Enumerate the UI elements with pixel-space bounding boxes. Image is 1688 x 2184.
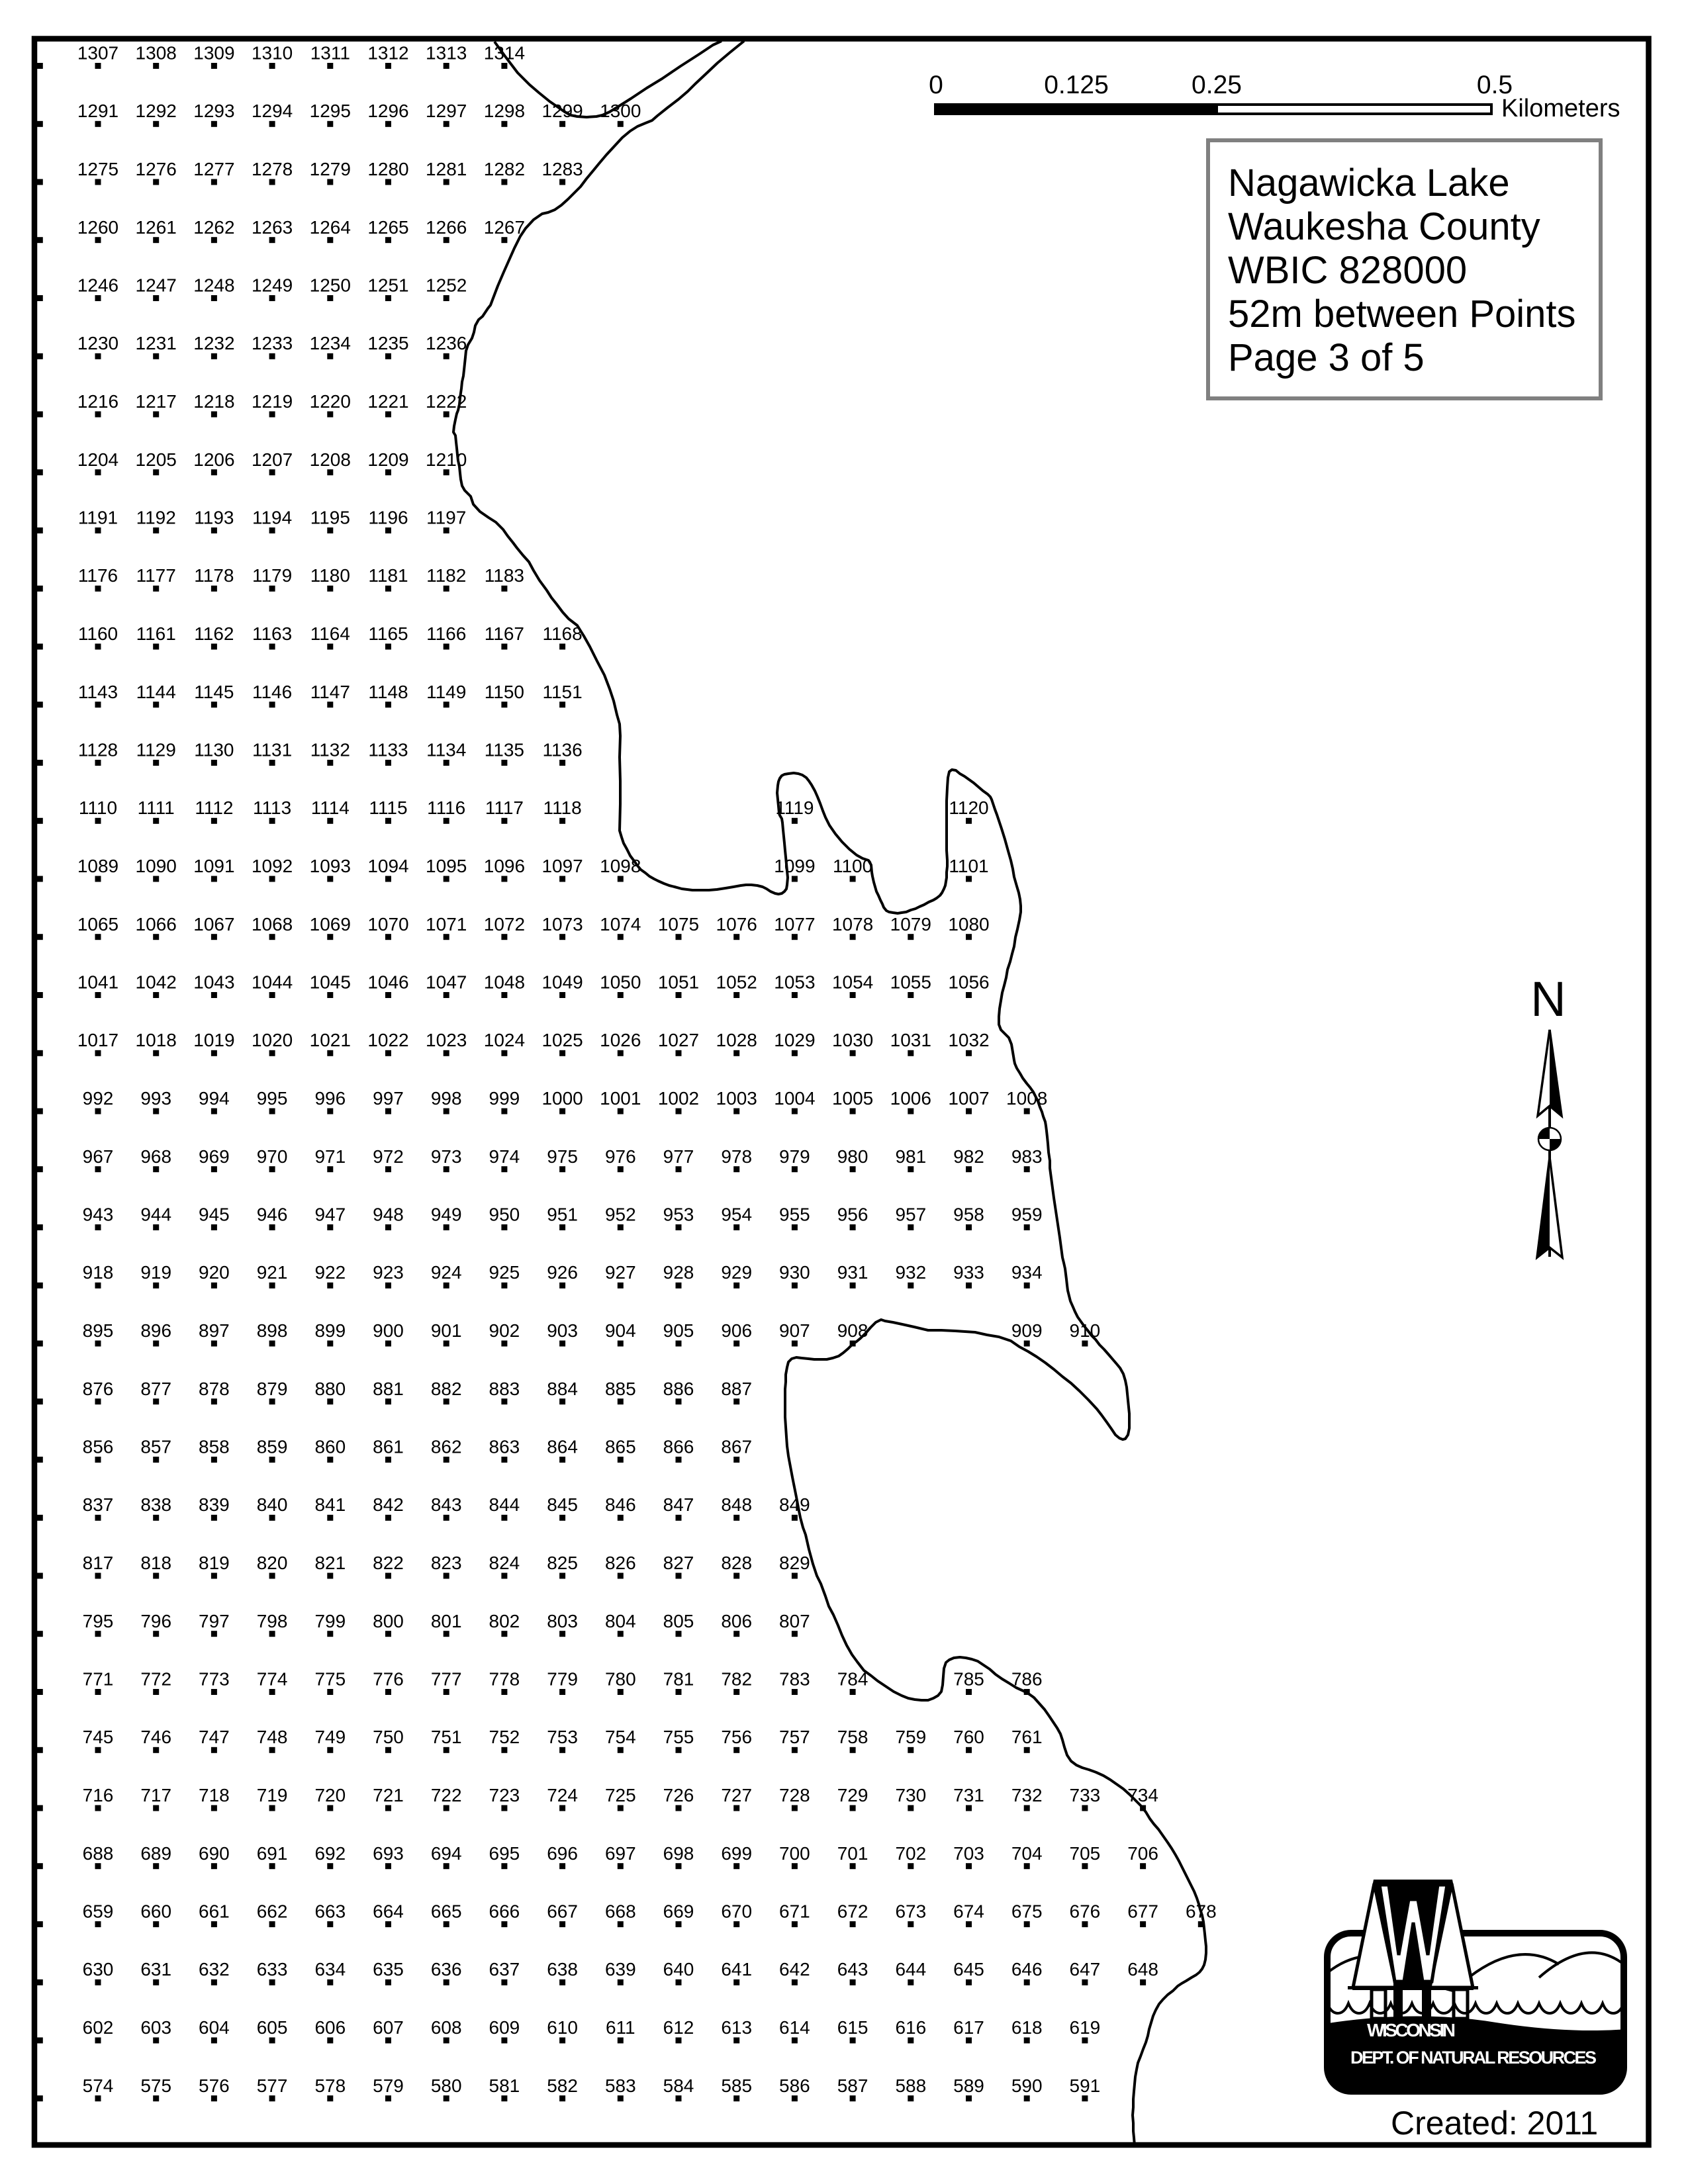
svg-text:1260: 1260 bbox=[77, 217, 118, 238]
svg-text:610: 610 bbox=[547, 2017, 578, 2038]
svg-text:606: 606 bbox=[314, 2017, 346, 2038]
svg-text:729: 729 bbox=[837, 1785, 868, 1805]
svg-text:676: 676 bbox=[1070, 1901, 1101, 1922]
svg-text:821: 821 bbox=[314, 1553, 346, 1573]
svg-text:1032: 1032 bbox=[948, 1030, 989, 1050]
svg-text:840: 840 bbox=[257, 1494, 288, 1515]
svg-text:898: 898 bbox=[257, 1320, 288, 1341]
svg-text:807: 807 bbox=[779, 1611, 810, 1631]
svg-text:973: 973 bbox=[431, 1146, 462, 1167]
svg-text:1193: 1193 bbox=[194, 508, 234, 528]
svg-text:862: 862 bbox=[431, 1437, 462, 1457]
svg-text:578: 578 bbox=[314, 2075, 346, 2096]
svg-text:605: 605 bbox=[257, 2017, 288, 2038]
svg-text:1133: 1133 bbox=[368, 740, 408, 760]
svg-text:1277: 1277 bbox=[193, 159, 234, 179]
svg-text:1007: 1007 bbox=[948, 1088, 989, 1109]
svg-text:663: 663 bbox=[314, 1901, 346, 1922]
svg-text:1134: 1134 bbox=[426, 740, 466, 760]
svg-text:721: 721 bbox=[373, 1785, 404, 1805]
svg-text:773: 773 bbox=[199, 1669, 230, 1690]
svg-text:877: 877 bbox=[140, 1379, 171, 1399]
svg-text:583: 583 bbox=[605, 2075, 636, 2096]
svg-text:Kilometers: Kilometers bbox=[1501, 95, 1620, 122]
svg-text:846: 846 bbox=[605, 1494, 636, 1515]
svg-text:751: 751 bbox=[431, 1727, 462, 1747]
svg-text:1020: 1020 bbox=[252, 1030, 293, 1050]
svg-text:1114: 1114 bbox=[311, 797, 350, 818]
svg-text:576: 576 bbox=[199, 2075, 230, 2096]
svg-text:672: 672 bbox=[837, 1901, 868, 1922]
svg-text:1296: 1296 bbox=[367, 101, 408, 121]
svg-text:1001: 1001 bbox=[600, 1088, 641, 1109]
svg-text:644: 644 bbox=[895, 1959, 926, 1979]
svg-text:671: 671 bbox=[779, 1901, 810, 1922]
svg-text:926: 926 bbox=[547, 1262, 578, 1283]
svg-text:640: 640 bbox=[663, 1959, 694, 1979]
svg-text:1298: 1298 bbox=[484, 101, 525, 121]
svg-text:1209: 1209 bbox=[367, 449, 408, 470]
svg-text:617: 617 bbox=[953, 2017, 984, 2038]
svg-text:635: 635 bbox=[373, 1959, 404, 1979]
svg-text:1144: 1144 bbox=[136, 682, 176, 702]
svg-text:1183: 1183 bbox=[485, 565, 524, 586]
svg-text:591: 591 bbox=[1070, 2075, 1101, 2096]
svg-text:1129: 1129 bbox=[136, 740, 176, 760]
svg-text:1307: 1307 bbox=[77, 43, 118, 64]
svg-text:864: 864 bbox=[547, 1437, 578, 1457]
svg-text:732: 732 bbox=[1011, 1785, 1043, 1805]
svg-text:946: 946 bbox=[257, 1205, 288, 1225]
svg-text:865: 865 bbox=[605, 1437, 636, 1457]
svg-text:1262: 1262 bbox=[193, 217, 234, 238]
svg-text:669: 669 bbox=[663, 1901, 694, 1922]
svg-text:978: 978 bbox=[721, 1146, 752, 1167]
svg-text:1065: 1065 bbox=[77, 914, 118, 934]
svg-text:1192: 1192 bbox=[136, 508, 176, 528]
svg-text:688: 688 bbox=[83, 1843, 114, 1864]
svg-text:674: 674 bbox=[953, 1901, 984, 1922]
svg-text:752: 752 bbox=[489, 1727, 520, 1747]
svg-text:1308: 1308 bbox=[136, 43, 177, 64]
svg-text:799: 799 bbox=[314, 1611, 346, 1631]
svg-text:805: 805 bbox=[663, 1611, 694, 1631]
svg-text:880: 880 bbox=[314, 1379, 346, 1399]
svg-text:1031: 1031 bbox=[890, 1030, 931, 1050]
svg-text:925: 925 bbox=[489, 1262, 520, 1283]
svg-text:1135: 1135 bbox=[485, 740, 524, 760]
svg-text:897: 897 bbox=[199, 1320, 230, 1341]
svg-text:661: 661 bbox=[199, 1901, 230, 1922]
svg-text:1052: 1052 bbox=[716, 972, 757, 993]
svg-text:795: 795 bbox=[83, 1611, 114, 1631]
svg-text:976: 976 bbox=[605, 1146, 636, 1167]
svg-text:802: 802 bbox=[489, 1611, 520, 1631]
svg-text:703: 703 bbox=[953, 1843, 984, 1864]
svg-text:1095: 1095 bbox=[426, 856, 467, 876]
svg-text:1078: 1078 bbox=[832, 914, 873, 934]
svg-text:1090: 1090 bbox=[136, 856, 177, 876]
svg-text:631: 631 bbox=[140, 1959, 171, 1979]
svg-text:1264: 1264 bbox=[310, 217, 351, 238]
svg-text:778: 778 bbox=[489, 1669, 520, 1690]
svg-text:1167: 1167 bbox=[485, 623, 524, 644]
svg-text:1044: 1044 bbox=[252, 972, 293, 993]
svg-text:1160: 1160 bbox=[78, 623, 118, 644]
svg-text:949: 949 bbox=[431, 1205, 462, 1225]
svg-text:1194: 1194 bbox=[252, 508, 292, 528]
svg-text:1025: 1025 bbox=[541, 1030, 583, 1050]
svg-text:675: 675 bbox=[1011, 1901, 1043, 1922]
svg-text:632: 632 bbox=[199, 1959, 230, 1979]
svg-text:Waukesha County: Waukesha County bbox=[1228, 205, 1540, 248]
svg-text:863: 863 bbox=[489, 1437, 520, 1457]
svg-text:642: 642 bbox=[779, 1959, 810, 1979]
svg-text:876: 876 bbox=[83, 1379, 114, 1399]
svg-text:1291: 1291 bbox=[77, 101, 118, 121]
svg-text:1096: 1096 bbox=[484, 856, 525, 876]
svg-text:1021: 1021 bbox=[310, 1030, 351, 1050]
svg-text:908: 908 bbox=[837, 1320, 868, 1341]
svg-text:702: 702 bbox=[895, 1843, 926, 1864]
svg-text:1250: 1250 bbox=[310, 275, 351, 296]
svg-text:Page 3 of 5: Page 3 of 5 bbox=[1228, 336, 1425, 379]
svg-text:1117: 1117 bbox=[485, 797, 524, 818]
svg-text:1000: 1000 bbox=[541, 1088, 583, 1109]
svg-text:905: 905 bbox=[663, 1320, 694, 1341]
svg-text:1018: 1018 bbox=[136, 1030, 177, 1050]
svg-text:Nagawicka Lake: Nagawicka Lake bbox=[1228, 161, 1510, 205]
svg-text:643: 643 bbox=[837, 1959, 868, 1979]
svg-text:1163: 1163 bbox=[252, 623, 292, 644]
svg-text:944: 944 bbox=[140, 1205, 171, 1225]
svg-text:690: 690 bbox=[199, 1843, 230, 1864]
svg-text:574: 574 bbox=[83, 2075, 114, 2096]
svg-text:887: 887 bbox=[721, 1379, 752, 1399]
svg-text:609: 609 bbox=[489, 2017, 520, 2038]
svg-text:818: 818 bbox=[140, 1553, 171, 1573]
svg-text:613: 613 bbox=[721, 2017, 752, 2038]
svg-text:785: 785 bbox=[953, 1669, 984, 1690]
svg-text:866: 866 bbox=[663, 1437, 694, 1457]
svg-text:760: 760 bbox=[953, 1727, 984, 1747]
svg-text:1077: 1077 bbox=[774, 914, 815, 934]
svg-text:1132: 1132 bbox=[310, 740, 350, 760]
svg-text:907: 907 bbox=[779, 1320, 810, 1341]
svg-text:860: 860 bbox=[314, 1437, 346, 1457]
svg-text:588: 588 bbox=[895, 2075, 926, 2096]
svg-text:1136: 1136 bbox=[542, 740, 582, 760]
svg-text:648: 648 bbox=[1127, 1959, 1158, 1979]
svg-text:817: 817 bbox=[83, 1553, 114, 1573]
svg-text:928: 928 bbox=[663, 1262, 694, 1283]
svg-text:577: 577 bbox=[257, 2075, 288, 2096]
svg-text:775: 775 bbox=[314, 1669, 346, 1690]
svg-text:641: 641 bbox=[721, 1959, 752, 1979]
svg-text:633: 633 bbox=[257, 1959, 288, 1979]
svg-text:968: 968 bbox=[140, 1146, 171, 1167]
svg-text:1151: 1151 bbox=[542, 682, 582, 702]
svg-text:1003: 1003 bbox=[716, 1088, 757, 1109]
svg-text:845: 845 bbox=[547, 1494, 578, 1515]
svg-text:582: 582 bbox=[547, 2075, 578, 2096]
svg-text:604: 604 bbox=[199, 2017, 230, 2038]
svg-text:615: 615 bbox=[837, 2017, 868, 2038]
svg-text:1249: 1249 bbox=[252, 275, 293, 296]
svg-text:947: 947 bbox=[314, 1205, 346, 1225]
svg-text:1116: 1116 bbox=[427, 797, 465, 818]
svg-text:630: 630 bbox=[83, 1959, 114, 1979]
svg-text:614: 614 bbox=[779, 2017, 810, 2038]
svg-text:1233: 1233 bbox=[252, 333, 293, 353]
svg-text:581: 581 bbox=[489, 2075, 520, 2096]
svg-text:580: 580 bbox=[431, 2075, 462, 2096]
svg-text:1019: 1019 bbox=[193, 1030, 234, 1050]
svg-text:1097: 1097 bbox=[541, 856, 583, 876]
svg-text:1295: 1295 bbox=[310, 101, 351, 121]
svg-text:1196: 1196 bbox=[368, 508, 408, 528]
svg-text:0.125: 0.125 bbox=[1044, 71, 1109, 99]
svg-text:754: 754 bbox=[605, 1727, 636, 1747]
svg-text:1112: 1112 bbox=[195, 797, 233, 818]
svg-text:667: 667 bbox=[547, 1901, 578, 1922]
svg-text:1279: 1279 bbox=[310, 159, 351, 179]
svg-text:1311: 1311 bbox=[310, 43, 350, 64]
svg-text:618: 618 bbox=[1011, 2017, 1043, 2038]
svg-text:883: 883 bbox=[489, 1379, 520, 1399]
svg-text:1165: 1165 bbox=[368, 623, 408, 644]
svg-text:945: 945 bbox=[199, 1205, 230, 1225]
svg-text:995: 995 bbox=[257, 1088, 288, 1109]
svg-text:733: 733 bbox=[1070, 1785, 1101, 1805]
svg-text:804: 804 bbox=[605, 1611, 636, 1631]
svg-text:837: 837 bbox=[83, 1494, 114, 1515]
svg-text:747: 747 bbox=[199, 1727, 230, 1747]
svg-text:861: 861 bbox=[373, 1437, 404, 1457]
svg-text:997: 997 bbox=[373, 1088, 404, 1109]
svg-text:722: 722 bbox=[431, 1785, 462, 1805]
svg-text:774: 774 bbox=[257, 1669, 288, 1690]
svg-text:695: 695 bbox=[489, 1843, 520, 1864]
svg-text:902: 902 bbox=[489, 1320, 520, 1341]
svg-text:784: 784 bbox=[837, 1669, 868, 1690]
svg-text:1068: 1068 bbox=[252, 914, 293, 934]
svg-text:954: 954 bbox=[721, 1205, 752, 1225]
svg-text:1166: 1166 bbox=[426, 623, 466, 644]
svg-text:1023: 1023 bbox=[426, 1030, 467, 1050]
svg-text:900: 900 bbox=[373, 1320, 404, 1341]
svg-text:761: 761 bbox=[1011, 1727, 1043, 1747]
svg-text:910: 910 bbox=[1070, 1320, 1101, 1341]
svg-text:1176: 1176 bbox=[78, 565, 118, 586]
svg-text:1266: 1266 bbox=[426, 217, 467, 238]
svg-text:1042: 1042 bbox=[136, 972, 177, 993]
svg-text:1180: 1180 bbox=[310, 565, 350, 586]
svg-text:839: 839 bbox=[199, 1494, 230, 1515]
svg-text:803: 803 bbox=[547, 1611, 578, 1631]
svg-text:646: 646 bbox=[1011, 1959, 1043, 1979]
svg-text:798: 798 bbox=[257, 1611, 288, 1631]
svg-text:952: 952 bbox=[605, 1205, 636, 1225]
svg-text:958: 958 bbox=[953, 1205, 984, 1225]
svg-text:1294: 1294 bbox=[252, 101, 293, 121]
svg-text:1191: 1191 bbox=[78, 508, 118, 528]
svg-text:698: 698 bbox=[663, 1843, 694, 1864]
svg-text:1101: 1101 bbox=[949, 856, 988, 876]
svg-text:1110: 1110 bbox=[79, 797, 117, 818]
svg-text:1276: 1276 bbox=[136, 159, 177, 179]
svg-text:1251: 1251 bbox=[367, 275, 408, 296]
svg-text:782: 782 bbox=[721, 1669, 752, 1690]
svg-text:750: 750 bbox=[373, 1727, 404, 1747]
svg-text:1232: 1232 bbox=[193, 333, 234, 353]
svg-text:1246: 1246 bbox=[77, 275, 118, 296]
svg-text:1230: 1230 bbox=[77, 333, 118, 353]
svg-text:1208: 1208 bbox=[310, 449, 351, 470]
svg-text:749: 749 bbox=[314, 1727, 346, 1747]
svg-text:1220: 1220 bbox=[310, 391, 351, 412]
svg-text:608: 608 bbox=[431, 2017, 462, 2038]
svg-text:1070: 1070 bbox=[367, 914, 408, 934]
svg-text:1049: 1049 bbox=[541, 972, 583, 993]
svg-text:1131: 1131 bbox=[252, 740, 292, 760]
svg-text:924: 924 bbox=[431, 1262, 462, 1283]
svg-text:673: 673 bbox=[895, 1901, 926, 1922]
svg-text:776: 776 bbox=[373, 1669, 404, 1690]
svg-text:1099: 1099 bbox=[774, 856, 815, 876]
svg-text:1313: 1313 bbox=[426, 43, 467, 64]
svg-text:1178: 1178 bbox=[194, 565, 234, 586]
svg-text:1261: 1261 bbox=[136, 217, 177, 238]
svg-text:1055: 1055 bbox=[890, 972, 931, 993]
svg-text:998: 998 bbox=[431, 1088, 462, 1109]
svg-text:1297: 1297 bbox=[426, 101, 467, 121]
svg-text:584: 584 bbox=[663, 2075, 694, 2096]
svg-text:886: 886 bbox=[663, 1379, 694, 1399]
svg-text:777: 777 bbox=[431, 1669, 462, 1690]
svg-text:1098: 1098 bbox=[600, 856, 641, 876]
svg-text:1051: 1051 bbox=[658, 972, 699, 993]
svg-text:705: 705 bbox=[1070, 1843, 1101, 1864]
svg-text:1005: 1005 bbox=[832, 1088, 873, 1109]
svg-text:948: 948 bbox=[373, 1205, 404, 1225]
svg-text:999: 999 bbox=[489, 1088, 520, 1109]
svg-text:980: 980 bbox=[837, 1146, 868, 1167]
svg-text:1217: 1217 bbox=[136, 391, 177, 412]
svg-text:920: 920 bbox=[199, 1262, 230, 1283]
svg-text:727: 727 bbox=[721, 1785, 752, 1805]
svg-text:828: 828 bbox=[721, 1553, 752, 1573]
svg-text:696: 696 bbox=[547, 1843, 578, 1864]
svg-text:856: 856 bbox=[83, 1437, 114, 1457]
svg-text:1280: 1280 bbox=[367, 159, 408, 179]
svg-text:881: 881 bbox=[373, 1379, 404, 1399]
svg-text:951: 951 bbox=[547, 1205, 578, 1225]
svg-text:666: 666 bbox=[489, 1901, 520, 1922]
svg-text:759: 759 bbox=[895, 1727, 926, 1747]
svg-text:858: 858 bbox=[199, 1437, 230, 1457]
svg-text:1252: 1252 bbox=[426, 275, 467, 296]
svg-text:822: 822 bbox=[373, 1553, 404, 1573]
svg-text:1310: 1310 bbox=[252, 43, 293, 64]
svg-text:1043: 1043 bbox=[193, 972, 234, 993]
svg-text:1278: 1278 bbox=[252, 159, 293, 179]
svg-text:692: 692 bbox=[314, 1843, 346, 1864]
svg-text:848: 848 bbox=[721, 1494, 752, 1515]
svg-text:992: 992 bbox=[83, 1088, 114, 1109]
svg-text:717: 717 bbox=[140, 1785, 171, 1805]
svg-text:918: 918 bbox=[83, 1262, 114, 1283]
svg-text:1072: 1072 bbox=[484, 914, 525, 934]
svg-text:725: 725 bbox=[605, 1785, 636, 1805]
svg-text:719: 719 bbox=[257, 1785, 288, 1805]
svg-text:983: 983 bbox=[1011, 1146, 1043, 1167]
svg-text:1161: 1161 bbox=[136, 623, 176, 644]
svg-text:959: 959 bbox=[1011, 1205, 1043, 1225]
svg-text:1248: 1248 bbox=[193, 275, 234, 296]
svg-text:950: 950 bbox=[489, 1205, 520, 1225]
svg-text:895: 895 bbox=[83, 1320, 114, 1341]
svg-text:Created: 2011: Created: 2011 bbox=[1391, 2105, 1598, 2142]
svg-text:1312: 1312 bbox=[367, 43, 408, 64]
svg-text:1111: 1111 bbox=[138, 797, 175, 818]
svg-text:1143: 1143 bbox=[78, 682, 118, 702]
svg-text:819: 819 bbox=[199, 1553, 230, 1573]
svg-text:1115: 1115 bbox=[369, 797, 407, 818]
svg-text:1027: 1027 bbox=[658, 1030, 699, 1050]
svg-text:849: 849 bbox=[779, 1494, 810, 1515]
svg-text:826: 826 bbox=[605, 1553, 636, 1573]
svg-text:844: 844 bbox=[489, 1494, 520, 1515]
svg-text:587: 587 bbox=[837, 2075, 868, 2096]
svg-text:1204: 1204 bbox=[77, 449, 118, 470]
svg-text:996: 996 bbox=[314, 1088, 346, 1109]
svg-text:647: 647 bbox=[1070, 1959, 1101, 1979]
svg-text:979: 979 bbox=[779, 1146, 810, 1167]
svg-text:1265: 1265 bbox=[367, 217, 408, 238]
svg-text:1113: 1113 bbox=[253, 797, 291, 818]
svg-text:901: 901 bbox=[431, 1320, 462, 1341]
svg-text:726: 726 bbox=[663, 1785, 694, 1805]
svg-text:1219: 1219 bbox=[252, 391, 293, 412]
svg-text:1207: 1207 bbox=[252, 449, 293, 470]
svg-text:723: 723 bbox=[489, 1785, 520, 1805]
svg-text:970: 970 bbox=[257, 1146, 288, 1167]
svg-text:1050: 1050 bbox=[600, 972, 641, 993]
svg-text:885: 885 bbox=[605, 1379, 636, 1399]
svg-text:585: 585 bbox=[721, 2075, 752, 2096]
svg-text:934: 934 bbox=[1011, 1262, 1043, 1283]
svg-text:611: 611 bbox=[606, 2017, 635, 2038]
svg-text:1041: 1041 bbox=[77, 972, 118, 993]
svg-text:758: 758 bbox=[837, 1727, 868, 1747]
svg-text:1071: 1071 bbox=[426, 914, 467, 934]
svg-text:730: 730 bbox=[895, 1785, 926, 1805]
svg-text:693: 693 bbox=[373, 1843, 404, 1864]
svg-text:878: 878 bbox=[199, 1379, 230, 1399]
svg-text:1094: 1094 bbox=[367, 856, 408, 876]
svg-text:1029: 1029 bbox=[774, 1030, 815, 1050]
svg-text:1216: 1216 bbox=[77, 391, 118, 412]
svg-text:842: 842 bbox=[373, 1494, 404, 1515]
svg-text:922: 922 bbox=[314, 1262, 346, 1283]
svg-text:824: 824 bbox=[489, 1553, 520, 1573]
svg-text:982: 982 bbox=[953, 1146, 984, 1167]
svg-text:1002: 1002 bbox=[658, 1088, 699, 1109]
svg-text:670: 670 bbox=[721, 1901, 752, 1922]
svg-text:659: 659 bbox=[83, 1901, 114, 1922]
svg-text:1182: 1182 bbox=[426, 565, 466, 586]
